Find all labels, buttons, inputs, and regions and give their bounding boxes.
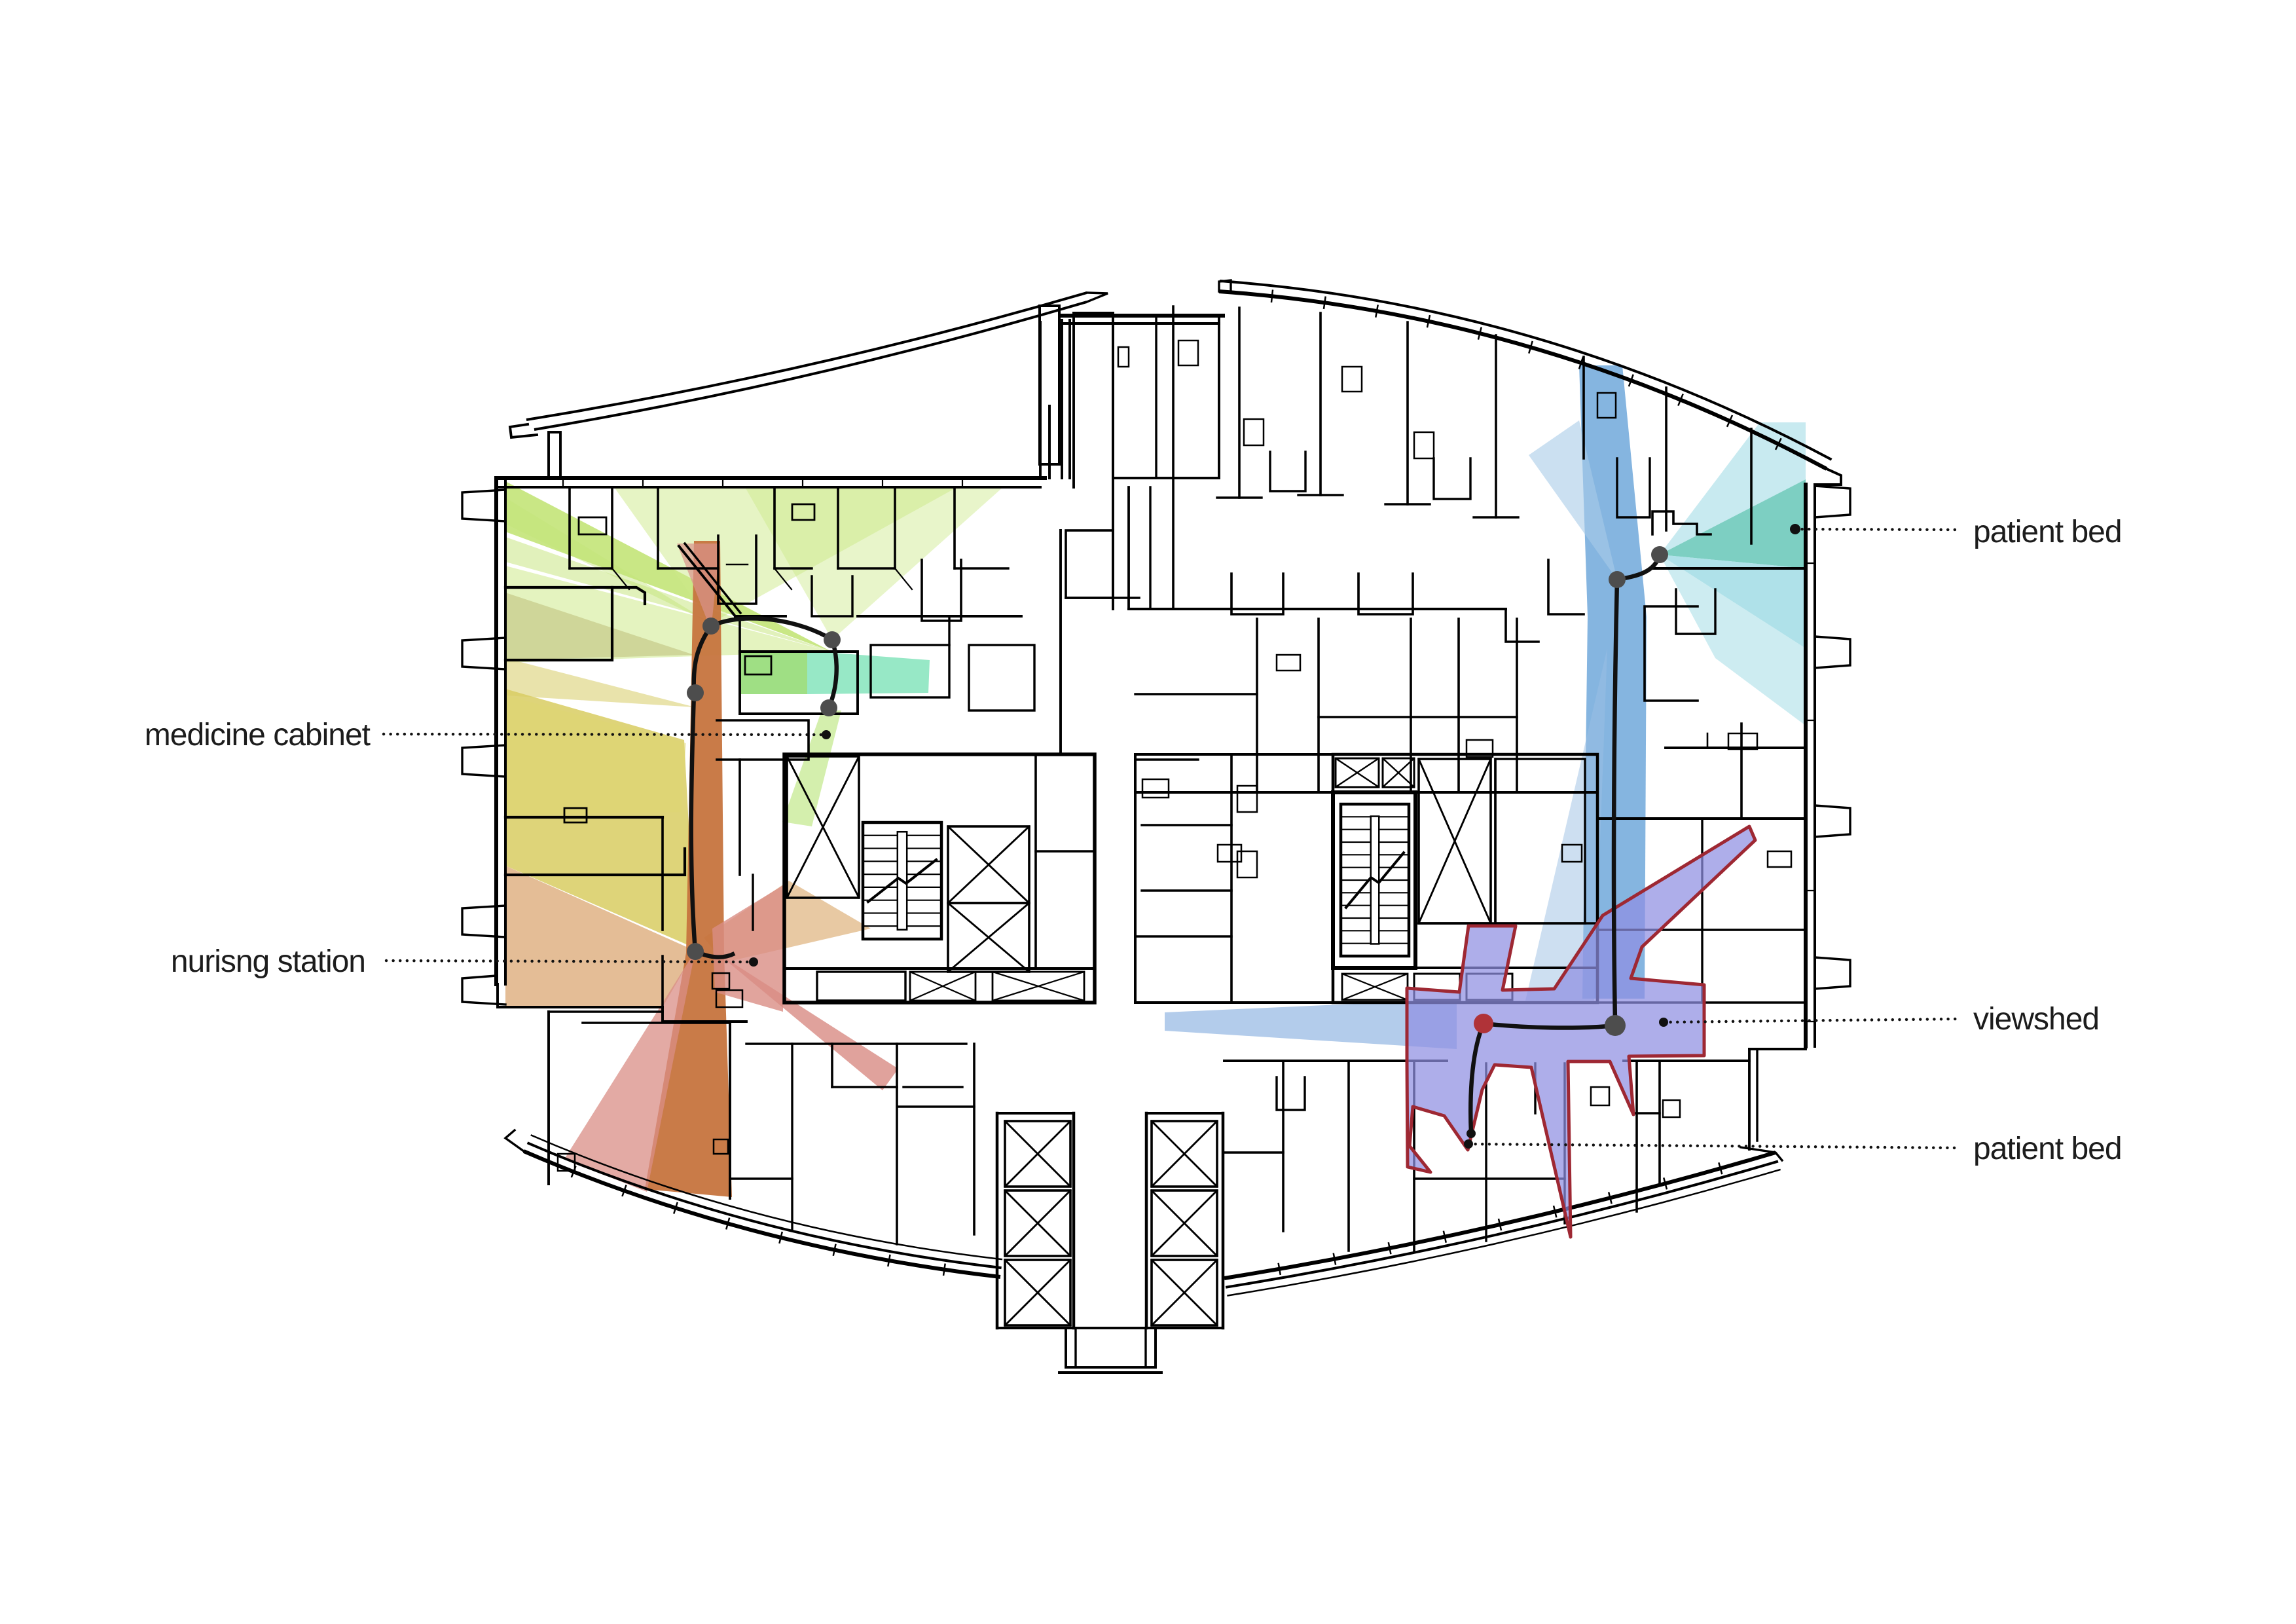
svg-text:viewshed: viewshed: [1973, 1002, 2099, 1037]
svg-text:nurisng station: nurisng station: [171, 944, 365, 979]
svg-text:medicine cabinet: medicine cabinet: [145, 718, 371, 752]
svg-text:patient bed: patient bed: [1973, 1132, 2122, 1166]
svg-text:patient bed: patient bed: [1973, 515, 2122, 549]
